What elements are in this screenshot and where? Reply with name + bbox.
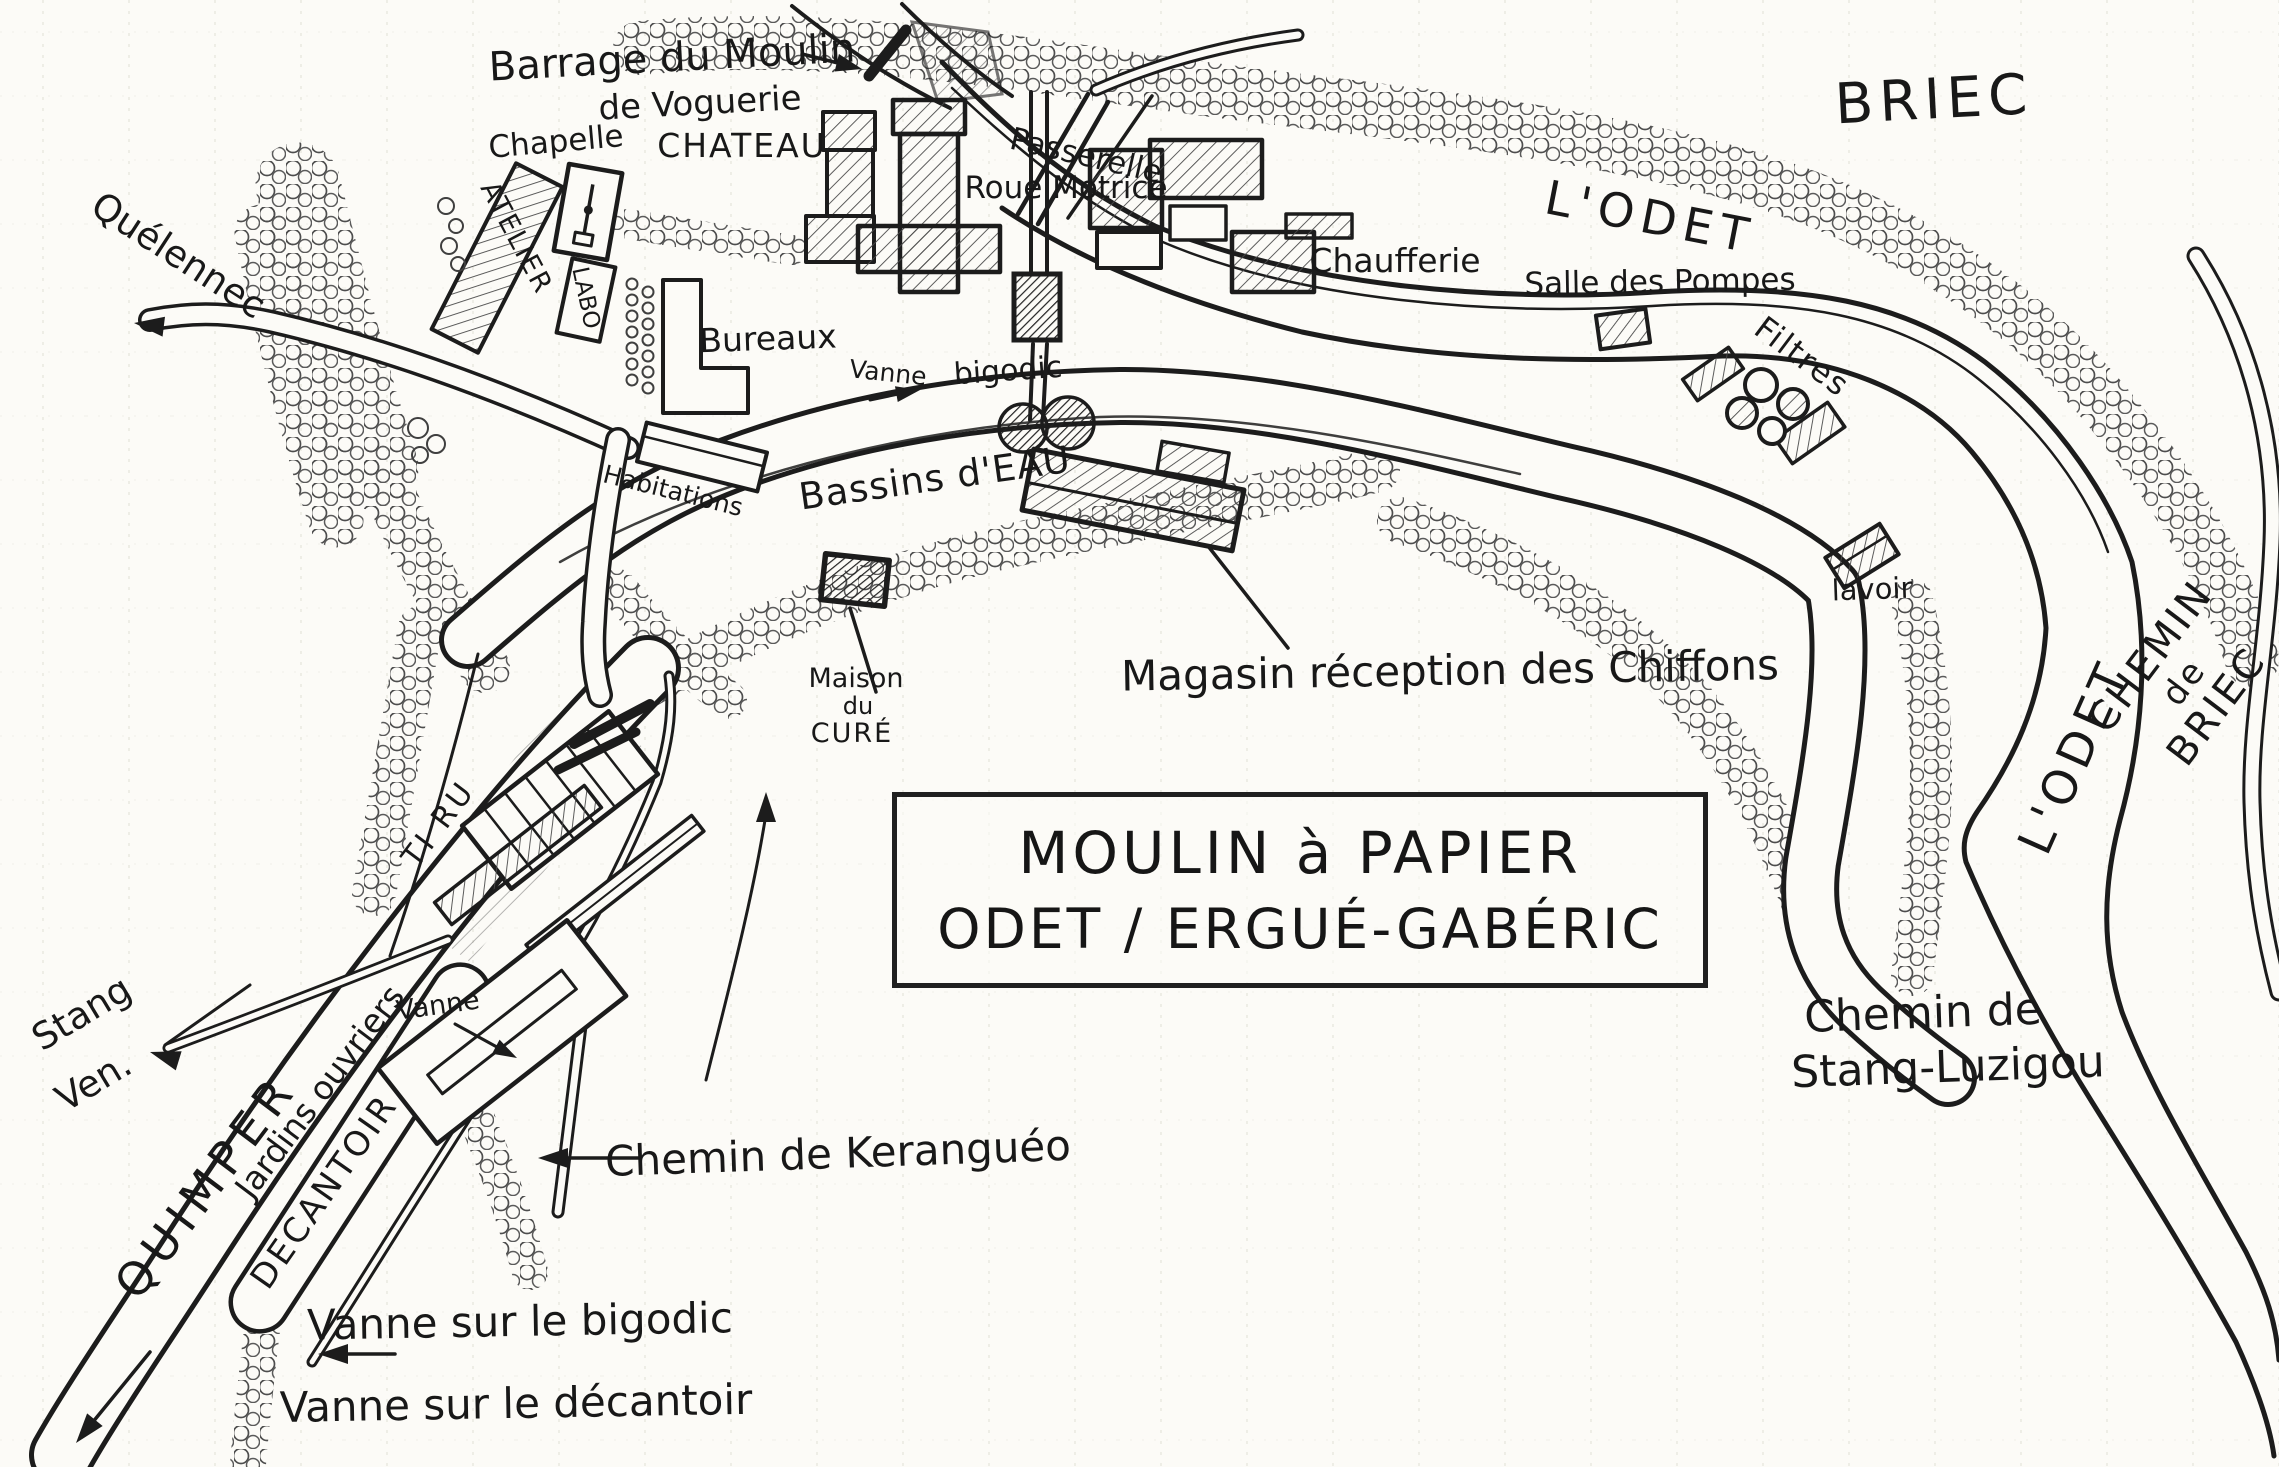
sluice-vanne-usine	[1014, 274, 1060, 340]
building-salle-des-pompes	[1596, 309, 1650, 350]
building-annex	[1097, 232, 1161, 268]
label-roue-motrice: Roue Motrice	[964, 171, 1167, 205]
building-chateau	[827, 150, 873, 216]
label-bureaux: Bureaux	[699, 318, 838, 359]
label-maison-line3: CURÉ	[811, 719, 893, 749]
filter-tank	[1745, 369, 1777, 401]
label-vanne-sur-bigodic: Vanne sur le bigodic	[307, 1295, 733, 1349]
label-maison-line1: Maison	[808, 664, 903, 694]
tree-band-bottom-left	[248, 1330, 262, 1464]
label-chateau: CHATEAU	[657, 128, 827, 164]
filter-tank	[1778, 389, 1808, 419]
label-stang-luzigou-line2: Stang-Luzigou	[1790, 1038, 2105, 1097]
label-maison-line2: du	[843, 693, 873, 719]
filter-tank	[1759, 418, 1785, 444]
label-vanne-sur-decantoir: Vanne sur le décantoir	[279, 1377, 752, 1431]
tree-band-lavoir	[1912, 600, 1931, 975]
label-bigodic: bigodic	[953, 351, 1064, 391]
building-mill	[893, 100, 965, 134]
filter-tank	[1727, 398, 1757, 428]
building-chateau	[823, 112, 875, 150]
map-title-line2: ODET / ERGUÉ-GABÉRIC	[937, 897, 1663, 961]
hand-drawn-site-map: Barrage du Moulin de Voguerie Chapelle C…	[0, 0, 2279, 1467]
building-chaufferie-annex	[1286, 214, 1352, 238]
building-maison-du-cure	[821, 554, 889, 606]
map-drawing	[0, 0, 2279, 1467]
label-salle-des-pompes: Salle des Pompes	[1524, 263, 1796, 302]
building-annex	[1170, 206, 1226, 240]
title-box: MOULIN à PAPIER ODET / ERGUÉ-GABÉRIC	[892, 792, 1708, 988]
label-stang-luzigou-line1: Chemin de	[1803, 986, 2042, 1043]
label-chaufferie: Chaufferie	[1309, 243, 1480, 279]
label-briec: BRIEC	[1833, 64, 2034, 136]
building-chaufferie	[1232, 232, 1314, 292]
building-mill	[858, 226, 1000, 272]
map-title-line1: MOULIN à PAPIER	[1018, 819, 1581, 887]
label-lavoir: lavoir	[1831, 573, 1913, 608]
